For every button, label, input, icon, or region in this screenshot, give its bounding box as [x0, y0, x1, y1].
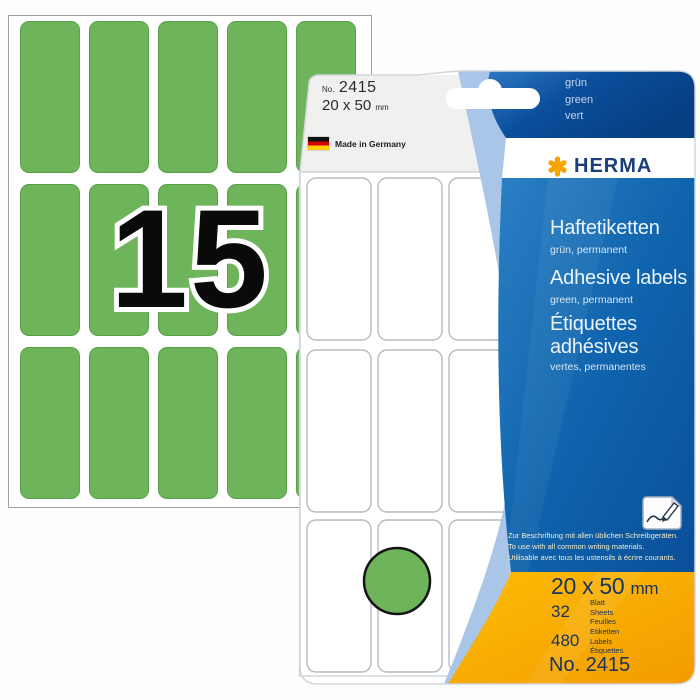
color-name-en: green [565, 92, 593, 109]
preview-label [307, 350, 371, 512]
usage-note-de: Zur Beschriftung mit allen üblichen Schr… [508, 530, 698, 541]
preview-label [378, 178, 442, 340]
herma-logo: HERMA [547, 155, 652, 178]
order-number: No. 2415 [549, 654, 630, 677]
product-subtitle-en: green, permanent [550, 294, 633, 306]
product-shot: 15 15 [0, 0, 700, 700]
sheet-label [227, 347, 287, 499]
spec-sheets-value: 32 [551, 602, 570, 622]
sheet-label [158, 347, 218, 499]
made-in-label: Made in Germany [335, 139, 406, 149]
product-title-fr-line1: Étiquettes [550, 314, 637, 334]
preview-label [307, 520, 371, 672]
preview-label [307, 178, 371, 340]
spec-sheets-words: Blatt Sheets Feuilles [590, 598, 616, 627]
product-title-en: Adhesive labels [550, 268, 687, 288]
tab-size: 20 x 50 mm [322, 97, 389, 114]
preview-label [378, 350, 442, 512]
spec-labels-value: 480 [551, 631, 579, 651]
labels-word-en: Labels [590, 637, 623, 647]
sheet-label [227, 21, 287, 173]
product-subtitle-fr: vertes, permanentes [550, 361, 646, 373]
herma-asterisk-icon [547, 156, 568, 177]
article-number: 2415 [339, 79, 377, 96]
color-names: grün green vert [565, 75, 593, 125]
usage-note-fr: Utilisable avec tous les ustensils à écr… [508, 552, 698, 563]
sheets-word-en: Sheets [590, 608, 616, 618]
tab-article-number: No. 2415 [322, 79, 377, 97]
sheets-word-fr: Feuilles [590, 617, 616, 627]
package: No. 2415 20 x 50 mm Made in Germany grün… [298, 68, 697, 687]
sheet-label [89, 21, 149, 173]
sheet-label [158, 21, 218, 173]
product-title-de: Haftetiketten [550, 218, 660, 238]
no-prefix: No. [322, 85, 334, 94]
color-name-de: grün [565, 75, 593, 92]
size-value: 20 x 50 [322, 97, 371, 114]
spec-size-value: 20 x 50 [551, 573, 624, 599]
product-subtitle-de: grün, permanent [550, 244, 627, 256]
spec-size-unit: mm [630, 579, 658, 598]
sheet-label [89, 347, 149, 499]
german-flag-icon [308, 137, 329, 150]
spec-labels-words: Etiketten Labels Étiquettes [590, 627, 623, 656]
pencil-icon [641, 495, 683, 531]
labels-word-de: Etiketten [590, 627, 623, 637]
sheet-label [20, 347, 80, 499]
brand-name: HERMA [574, 155, 652, 178]
sheet-label [20, 21, 80, 173]
spec-size: 20 x 50 mm [551, 573, 658, 600]
product-title-fr-line2: adhésives [550, 337, 638, 357]
sheets-word-de: Blatt [590, 598, 616, 608]
color-name-fr: vert [565, 108, 593, 125]
usage-notes: Zur Beschriftung mit allen üblichen Schr… [508, 530, 698, 564]
green-dot-label [364, 548, 430, 614]
usage-note-en: To use with all common writing materials… [508, 541, 698, 552]
size-unit: mm [375, 103, 388, 112]
